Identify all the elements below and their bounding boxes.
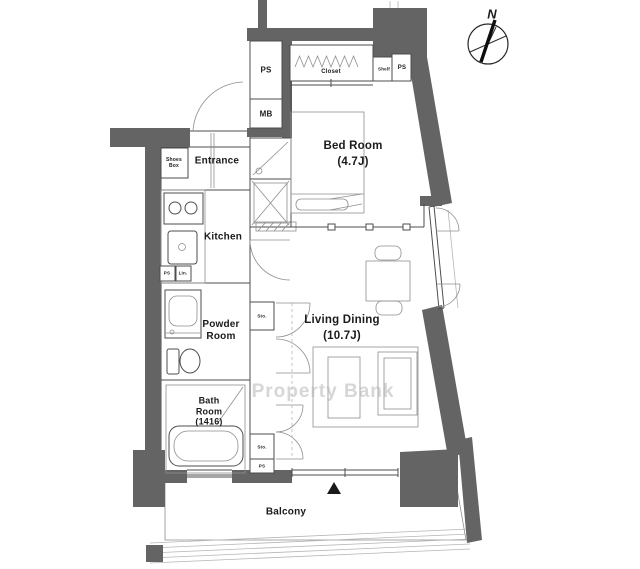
compass-north-label: N: [487, 7, 497, 22]
kitchen-ps-label: PS: [164, 271, 170, 276]
living-dining-label: Living Dining (10.7J): [304, 312, 379, 344]
refrigerator-space: [250, 179, 291, 227]
floor-plan-drawing: [0, 0, 640, 569]
shelf-label: Shelf: [378, 67, 390, 72]
ps-shaft-label: PS: [260, 66, 271, 75]
floor-plan: Property Bank Entrance Shoes Box PS MB C…: [0, 0, 640, 569]
balcony-label: Balcony: [266, 507, 306, 518]
mb-label: MB: [260, 110, 273, 119]
closet-label: Closet: [321, 69, 341, 75]
washer-space: [250, 138, 291, 179]
closet: [290, 45, 373, 87]
dining-set-icon: [366, 246, 410, 315]
storage-ps-label: PS: [259, 464, 265, 469]
shoes-box-label: Shoes Box: [166, 157, 182, 169]
bedroom-label: Bed Room (4.7J): [323, 138, 382, 170]
kitchen-label: Kitchen: [204, 232, 242, 243]
closet-ps-label: PS: [398, 65, 406, 71]
watermark: Property Bank: [252, 381, 395, 403]
entrance-label: Entrance: [195, 156, 239, 167]
direction-marker: [327, 482, 341, 494]
storage-lower-label: Sto.: [257, 445, 266, 450]
linen-label: Lin.: [179, 271, 188, 276]
powder-room-label: Powder Room: [202, 319, 239, 343]
bath-room-label: Bath Room (1416): [195, 395, 222, 427]
storage-upper-label: Sto.: [257, 314, 266, 319]
east-window: [429, 206, 460, 309]
compass-icon: [468, 20, 508, 64]
